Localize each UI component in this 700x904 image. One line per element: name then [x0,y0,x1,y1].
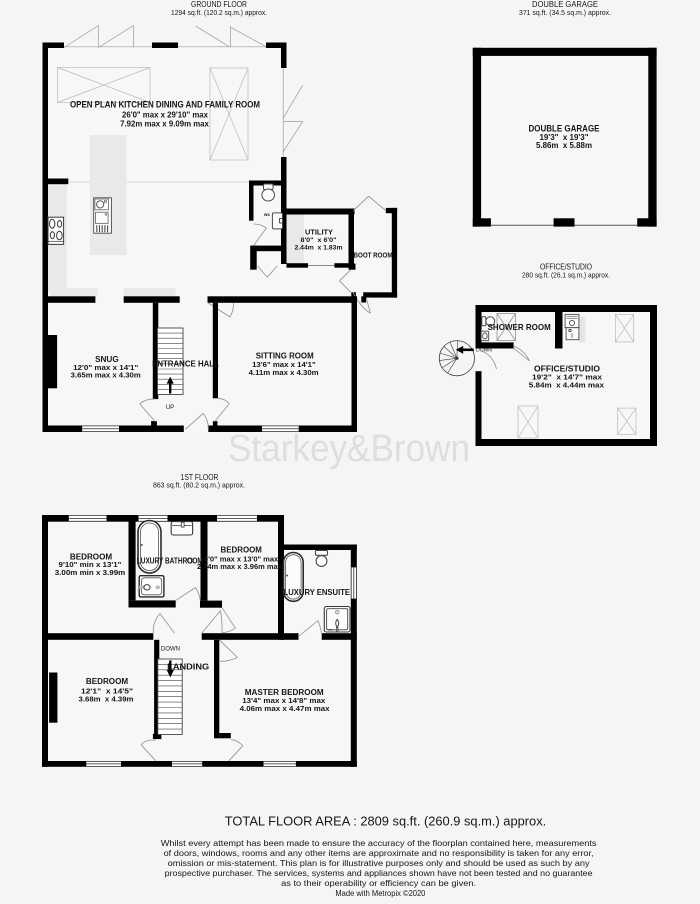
svg-text:UP: UP [166,405,174,411]
svg-text:DOWN: DOWN [161,647,180,653]
svg-text:BEDROOM: BEDROOM [221,546,263,555]
svg-text:SHOWER ROOM: SHOWER ROOM [488,322,551,332]
svg-text:2.74m max x 3.96m max: 2.74m max x 3.96m max [197,562,283,571]
svg-text:2.44m x 1.83m: 2.44m x 1.83m [295,244,343,251]
svg-text:DOWN: DOWN [476,348,492,354]
svg-text:3.65m max x 4.30m: 3.65m max x 4.30m [71,371,141,380]
svg-text:as to their operability or eff: as to their operability or efficiency ca… [281,878,476,888]
svg-text:OPEN PLAN KITCHEN DINING AND F: OPEN PLAN KITCHEN DINING AND FAMILY ROOM [70,99,260,110]
svg-text:LUXURY ENSUITE: LUXURY ENSUITE [284,588,351,597]
svg-text:863 sq.ft. (80.2 sq.m.) approx: 863 sq.ft. (80.2 sq.m.) approx. [153,481,245,490]
svg-text:UTILITY: UTILITY [305,230,333,237]
svg-text:omission or mis-statement. Thi: omission or mis-statement. This plan is … [168,858,591,868]
svg-text:LANDING: LANDING [167,662,209,671]
svg-text:4.06m max x 4.47m max: 4.06m max x 4.47m max [240,704,331,713]
svg-text:TOTAL FLOOR AREA : 2809 sq.ft.: TOTAL FLOOR AREA : 2809 sq.ft. (260.9 sq… [225,814,546,828]
svg-text:prospective purchaser. The ser: prospective purchaser. The services, sys… [165,868,593,878]
svg-text:3.68m x 4.39m: 3.68m x 4.39m [79,694,134,703]
svg-text:5.84m x 4.44m max: 5.84m x 4.44m max [529,380,605,389]
svg-text:3.00m min x 3.99m: 3.00m min x 3.99m [55,568,126,577]
svg-text:4.11m max x 4.30m: 4.11m max x 4.30m [249,368,319,377]
svg-text:5.86m x 5.88m: 5.86m x 5.88m [536,141,592,150]
svg-text:wc: wc [263,212,271,217]
svg-text:DOUBLE GARAGE: DOUBLE GARAGE [529,124,600,134]
svg-text:BOOT ROOM: BOOT ROOM [354,250,393,259]
svg-text:7.92m max x 9.09m max: 7.92m max x 9.09m max [120,118,209,128]
svg-text:ENTRANCE HALL: ENTRANCE HALL [152,359,219,368]
svg-text:BEDROOM: BEDROOM [86,677,129,686]
svg-text:Whilst every attempt has been: Whilst every attempt has been made to en… [161,838,597,848]
svg-text:371 sq.ft. (34.5 sq.m.) approx: 371 sq.ft. (34.5 sq.m.) approx. [519,8,611,17]
svg-text:of doors, windows, rooms and a: of doors, windows, rooms and any other i… [164,848,594,858]
svg-text:1294 sq.ft. (120.2 sq.m.) appr: 1294 sq.ft. (120.2 sq.m.) approx. [171,8,267,17]
svg-text:Starkey&Brown: Starkey&Brown [228,428,470,470]
svg-text:LUXURY BATHROOM: LUXURY BATHROOM [137,557,203,566]
svg-text:280 sq.ft. (26.1 sq.m.) approx: 280 sq.ft. (26.1 sq.m.) approx. [522,271,610,280]
svg-text:Made with Metropix ©2020: Made with Metropix ©2020 [335,888,425,898]
svg-text:8'0" x 6'0": 8'0" x 6'0" [301,237,337,244]
